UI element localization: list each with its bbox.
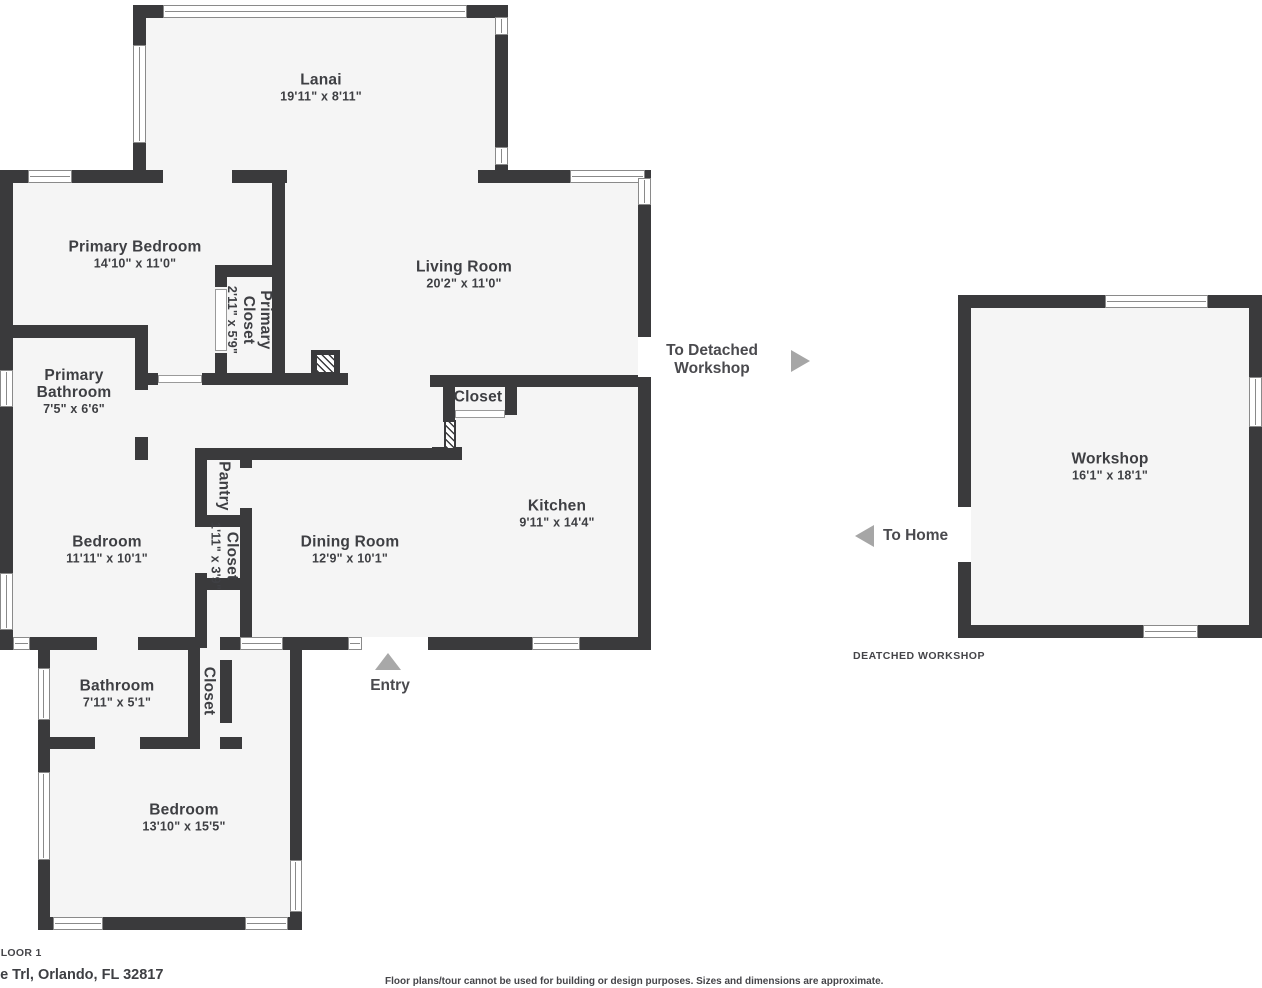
room-dimensions: 2'11" x 5'9"	[224, 275, 240, 365]
room-name: Closet	[454, 389, 503, 406]
room-name: Lanai	[280, 72, 362, 89]
floor-plan: To Detached Workshop To Home Entry DEATC…	[0, 0, 1262, 988]
entry-label: Entry	[350, 677, 430, 695]
door-opening	[958, 507, 971, 562]
wall	[220, 637, 240, 650]
entry-arrow-icon	[375, 653, 401, 670]
wall	[220, 660, 232, 723]
to-home-label: To Home	[883, 527, 948, 545]
wall	[220, 737, 242, 749]
door-panel	[455, 410, 505, 418]
room-dimensions: 20'2" x 11'0"	[416, 276, 512, 292]
chimney-box	[311, 350, 340, 377]
room-dimensions: 12'9" x 10'1"	[301, 551, 400, 567]
wall	[1249, 295, 1262, 638]
window	[348, 637, 362, 650]
door-opening	[362, 637, 428, 650]
wall	[0, 637, 13, 650]
room-name: Bedroom	[66, 534, 148, 551]
room-name: Dining Room	[301, 534, 400, 551]
room-dimensions: 16'1" x 18'1"	[1071, 468, 1148, 484]
room-dimensions: 1'11" x 3'9"	[208, 522, 224, 590]
room-name: Kitchen	[519, 498, 594, 515]
floor-label: FLOOR 1	[0, 947, 42, 959]
window	[133, 45, 146, 143]
room-label-lower-closet: Closet	[201, 667, 218, 716]
room-dimensions: 9'11" x 14'4"	[519, 515, 594, 531]
wall	[505, 375, 517, 415]
window	[0, 573, 13, 630]
wall	[38, 737, 95, 749]
room-name: Bedroom	[142, 802, 225, 819]
room-label-lanai: Lanai19'11" x 8'11"	[280, 72, 362, 105]
room-name: Primary Bedroom	[68, 239, 201, 256]
to-home-arrow-icon	[855, 525, 874, 547]
wall	[188, 648, 200, 749]
window	[38, 772, 50, 860]
room-name: Closet	[201, 667, 218, 716]
to-detached-workshop-label: To Detached Workshop	[647, 342, 777, 378]
window	[1105, 295, 1208, 308]
room-dimensions: 7'5" x 6'6"	[19, 401, 129, 417]
window	[532, 637, 580, 650]
window	[1249, 377, 1262, 427]
window	[38, 668, 50, 720]
room-label-bedroom: Bedroom11'11" x 10'1"	[66, 534, 148, 567]
window	[495, 147, 508, 165]
room-label-dining-room: Dining Room12'9" x 10'1"	[301, 534, 400, 567]
wall	[0, 170, 163, 183]
room-label-primary-bathroom: Primary Bathroom7'5" x 6'6"	[19, 367, 129, 417]
room-label-hall-closet: Closet1'11" x 3'9"	[208, 522, 241, 590]
wall	[958, 295, 971, 507]
wall	[148, 373, 158, 385]
room-name: Bathroom	[80, 678, 155, 695]
room-label-workshop: Workshop16'1" x 18'1"	[1071, 451, 1148, 484]
wall	[38, 917, 53, 930]
wall	[638, 377, 651, 645]
room-dimensions: 11'11" x 10'1"	[66, 551, 148, 567]
room-dimensions: 7'11" x 5'1"	[80, 695, 155, 711]
wall	[103, 917, 245, 930]
room-dimensions: 19'11" x 8'11"	[280, 89, 362, 105]
window	[28, 170, 72, 183]
room-label-bathroom: Bathroom7'11" x 5'1"	[80, 678, 155, 711]
room-label-pantry: Pantry	[216, 461, 233, 510]
window	[570, 170, 645, 183]
wall	[140, 737, 200, 749]
wall	[240, 448, 252, 468]
window	[290, 860, 302, 912]
window	[240, 637, 283, 650]
room-label-primary-bedroom: Primary Bedroom14'10" x 11'0"	[68, 239, 201, 272]
wall	[580, 637, 651, 650]
window	[13, 637, 30, 650]
window	[495, 17, 508, 35]
disclaimer: Floor plans/tour cannot be used for buil…	[385, 976, 883, 987]
window	[245, 917, 288, 930]
wall	[0, 325, 148, 338]
room-name: Living Room	[416, 259, 512, 276]
room-label-living-room: Living Room20'2" x 11'0"	[416, 259, 512, 292]
window	[163, 5, 467, 18]
room-label-primary-closet: Primary Closet2'11" x 5'9"	[224, 275, 274, 365]
room-label-lower-bedroom: Bedroom13'10" x 15'5"	[142, 802, 225, 835]
room-name: Closet	[224, 522, 241, 590]
wall	[430, 375, 651, 387]
wall	[195, 448, 462, 460]
wall	[958, 562, 971, 638]
window	[0, 370, 13, 407]
room-name: Workshop	[1071, 451, 1148, 468]
address: ee Trl, Orlando, FL 32817	[0, 967, 163, 983]
room-dimensions: 14'10" x 11'0"	[68, 256, 201, 272]
wall	[135, 437, 148, 460]
to-detached-workshop-arrow-icon	[791, 350, 810, 372]
door-panel	[158, 375, 202, 383]
room-name: Pantry	[216, 461, 233, 510]
room-label-kitchen-closet: Closet	[454, 389, 503, 406]
window	[1143, 625, 1198, 638]
room-dimensions: 13'10" x 15'5"	[142, 819, 225, 835]
window	[638, 178, 651, 205]
wall	[135, 325, 148, 390]
wall	[428, 637, 532, 650]
room-label-kitchen: Kitchen9'11" x 14'4"	[519, 498, 594, 531]
wall	[958, 625, 1262, 638]
room-name: Primary Bathroom	[19, 367, 129, 401]
window	[53, 917, 103, 930]
wall	[288, 917, 302, 930]
water-heater-box	[444, 420, 456, 450]
room-name: Primary Closet	[240, 275, 274, 365]
workshop-caption: DEATCHED WORKSHOP	[853, 650, 985, 662]
floor-area	[38, 648, 302, 930]
